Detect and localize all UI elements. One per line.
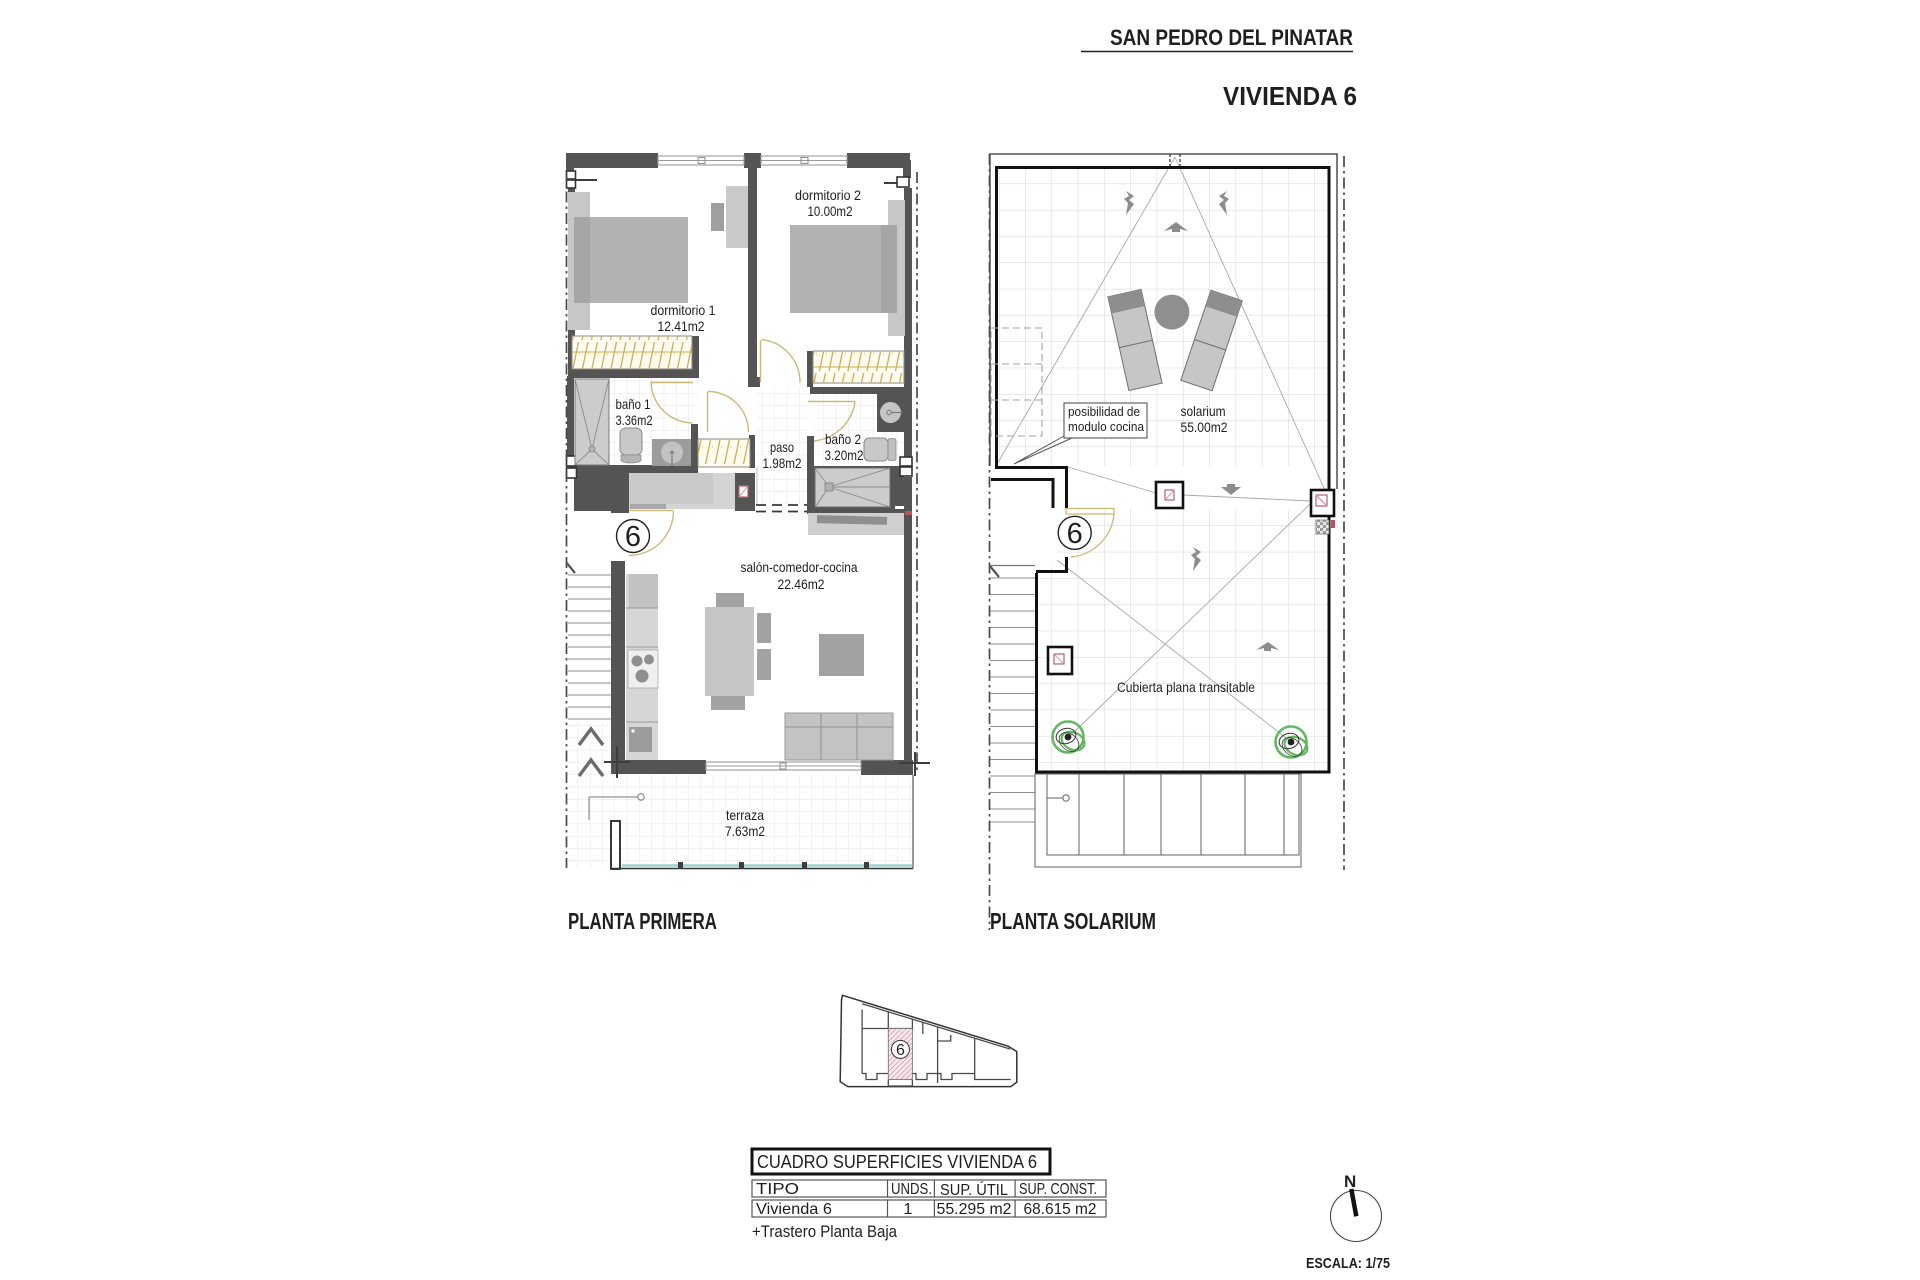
svg-text:modulo cocina: modulo cocina bbox=[1068, 419, 1145, 434]
svg-text:paso: paso bbox=[770, 439, 794, 455]
svg-text:55.00m2: 55.00m2 bbox=[1181, 419, 1228, 435]
svg-text:N: N bbox=[1344, 1172, 1356, 1191]
svg-text:PLANTA SOLARIUM: PLANTA SOLARIUM bbox=[990, 908, 1156, 934]
svg-text:VIVIENDA 6: VIVIENDA 6 bbox=[1223, 81, 1357, 111]
svg-text:baño 1: baño 1 bbox=[616, 396, 651, 412]
svg-text:posibilidad de: posibilidad de bbox=[1068, 404, 1140, 419]
svg-text:SAN PEDRO DEL PINATAR: SAN PEDRO DEL PINATAR bbox=[1110, 25, 1353, 50]
svg-text:22.46m2: 22.46m2 bbox=[778, 576, 825, 592]
svg-text:7.63m2: 7.63m2 bbox=[725, 823, 765, 839]
svg-text:baño 2: baño 2 bbox=[825, 431, 861, 447]
svg-text:1: 1 bbox=[904, 1201, 913, 1218]
svg-text:terraza: terraza bbox=[726, 807, 764, 823]
svg-text:10.00m2: 10.00m2 bbox=[808, 203, 853, 219]
svg-text:6: 6 bbox=[896, 1042, 905, 1059]
svg-text:55.295 m2: 55.295 m2 bbox=[937, 1201, 1012, 1218]
svg-text:6: 6 bbox=[625, 521, 641, 553]
svg-text:1.98m2: 1.98m2 bbox=[763, 455, 802, 471]
svg-text:UNDS.: UNDS. bbox=[891, 1181, 932, 1198]
svg-text:dormitorio 1: dormitorio 1 bbox=[651, 302, 716, 318]
svg-text:salón-comedor-cocina: salón-comedor-cocina bbox=[741, 559, 858, 575]
svg-text:ESCALA: 1/75: ESCALA: 1/75 bbox=[1306, 1255, 1390, 1272]
svg-text:Cubierta plana transitable: Cubierta plana transitable bbox=[1117, 679, 1255, 695]
svg-text:3.20m2: 3.20m2 bbox=[825, 447, 864, 463]
svg-text:12.41m2: 12.41m2 bbox=[658, 318, 705, 334]
svg-text:TIPO: TIPO bbox=[756, 1181, 799, 1198]
svg-text:+Trastero Planta Baja: +Trastero Planta Baja bbox=[752, 1222, 897, 1241]
svg-text:6: 6 bbox=[1067, 518, 1083, 550]
svg-text:CUADRO SUPERFICIES VIVIENDA 6: CUADRO SUPERFICIES VIVIENDA 6 bbox=[757, 1152, 1037, 1172]
svg-text:3.36m2: 3.36m2 bbox=[616, 412, 653, 428]
svg-text:68.615 m2: 68.615 m2 bbox=[1024, 1201, 1097, 1218]
svg-text:SUP. ÚTIL: SUP. ÚTIL bbox=[940, 1180, 1008, 1199]
svg-text:dormitorio 2: dormitorio 2 bbox=[795, 187, 861, 203]
svg-text:SUP. CONST.: SUP. CONST. bbox=[1019, 1181, 1097, 1198]
svg-text:solarium: solarium bbox=[1181, 403, 1226, 419]
svg-text:PLANTA PRIMERA: PLANTA PRIMERA bbox=[568, 908, 717, 934]
svg-text:Vivienda 6: Vivienda 6 bbox=[756, 1201, 832, 1218]
